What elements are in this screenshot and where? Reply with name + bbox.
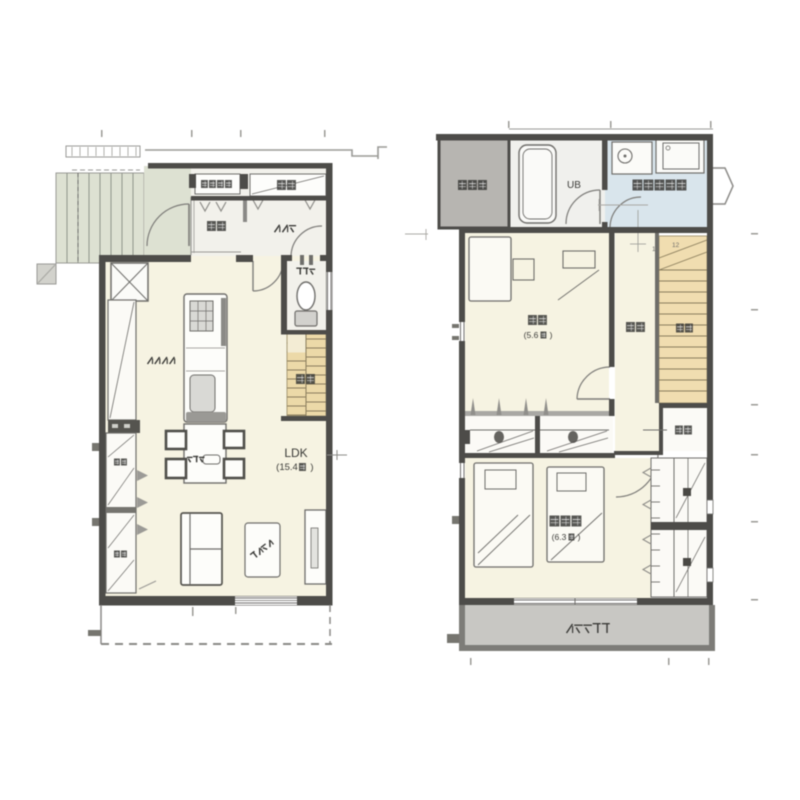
svg-text:(6.3: (6.3 — [552, 532, 567, 542]
svg-text:): ) — [310, 462, 313, 473]
svg-text:(15.4: (15.4 — [276, 462, 298, 473]
svg-text:UB: UB — [567, 180, 581, 191]
svg-text:): ) — [578, 532, 581, 542]
svg-text:(5.6: (5.6 — [524, 330, 539, 340]
svg-text:12: 12 — [672, 242, 680, 249]
svg-text:): ) — [550, 330, 553, 340]
svg-text:LDK: LDK — [284, 446, 307, 460]
